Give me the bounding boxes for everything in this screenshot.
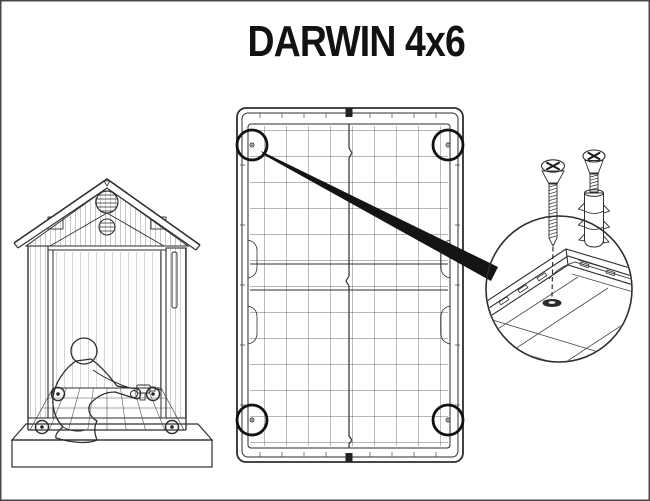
back-wall xyxy=(53,252,161,388)
floor-corner-perspective xyxy=(484,247,640,414)
floor-screw-marker xyxy=(166,421,179,434)
phillips-cross-icon xyxy=(589,153,600,159)
floor-screw-marker xyxy=(36,421,49,434)
phillips-cross-icon xyxy=(547,163,559,169)
hardware-detail-callout xyxy=(484,150,640,414)
countersunk-screw-icon xyxy=(542,160,565,246)
pilot-dashed-line xyxy=(552,247,553,297)
assembly-diagram xyxy=(0,0,650,501)
shed-gable xyxy=(26,188,188,246)
anchor-hole-icon xyxy=(543,299,562,307)
floor-panel-top-view xyxy=(237,108,463,462)
shed-scene xyxy=(12,179,212,467)
instruction-page: DARWIN 4x6 xyxy=(0,0,650,501)
